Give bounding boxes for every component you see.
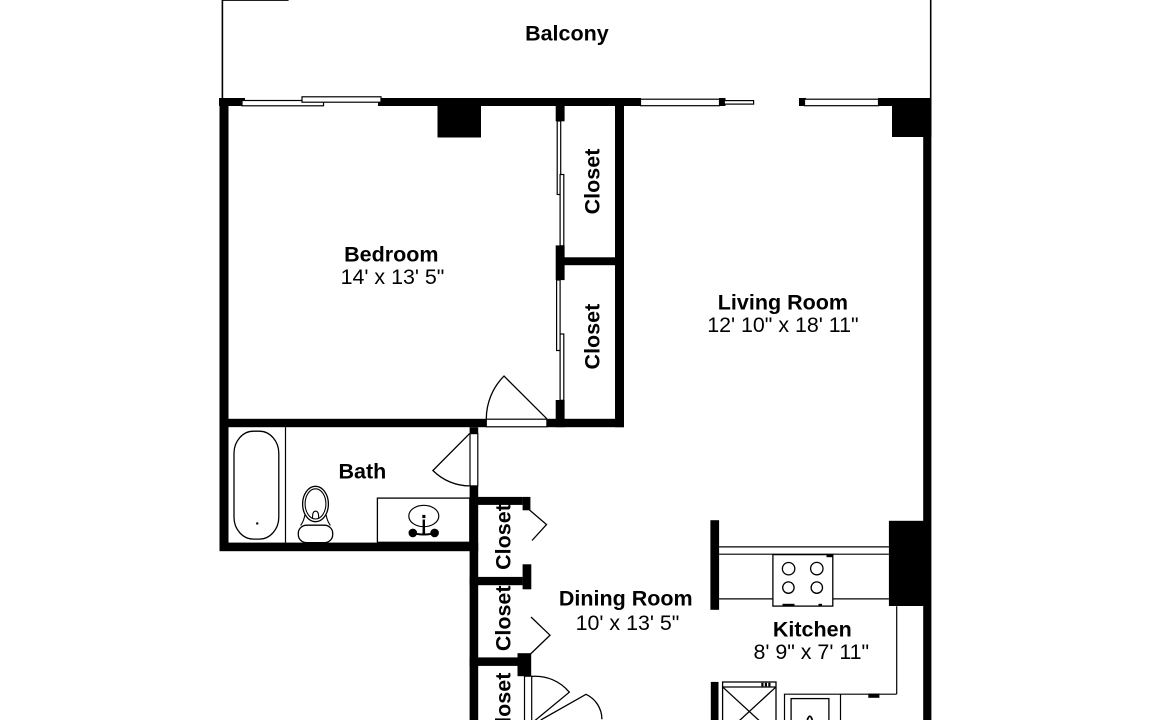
svg-text:Living Room: Living Room (718, 291, 848, 315)
svg-text:Closet: Closet (580, 149, 604, 215)
svg-text:Bath: Bath (339, 460, 387, 484)
svg-text:Closet: Closet (492, 585, 516, 651)
svg-text:10' x 13' 5": 10' x 13' 5" (576, 611, 680, 635)
svg-text:Dining Room: Dining Room (559, 587, 693, 611)
svg-text:14' x 13' 5": 14' x 13' 5" (341, 265, 445, 289)
svg-text:Closet: Closet (492, 673, 516, 720)
svg-text:12' 10" x 18' 11": 12' 10" x 18' 11" (707, 313, 858, 337)
svg-text:Kitchen: Kitchen (773, 618, 852, 642)
svg-text:Balcony: Balcony (525, 21, 609, 45)
svg-text:Bedroom: Bedroom (344, 242, 438, 266)
svg-text:Closet: Closet (491, 504, 515, 570)
svg-text:8' 9" x 7' 11": 8' 9" x 7' 11" (753, 640, 869, 664)
svg-text:Closet: Closet (580, 304, 604, 370)
